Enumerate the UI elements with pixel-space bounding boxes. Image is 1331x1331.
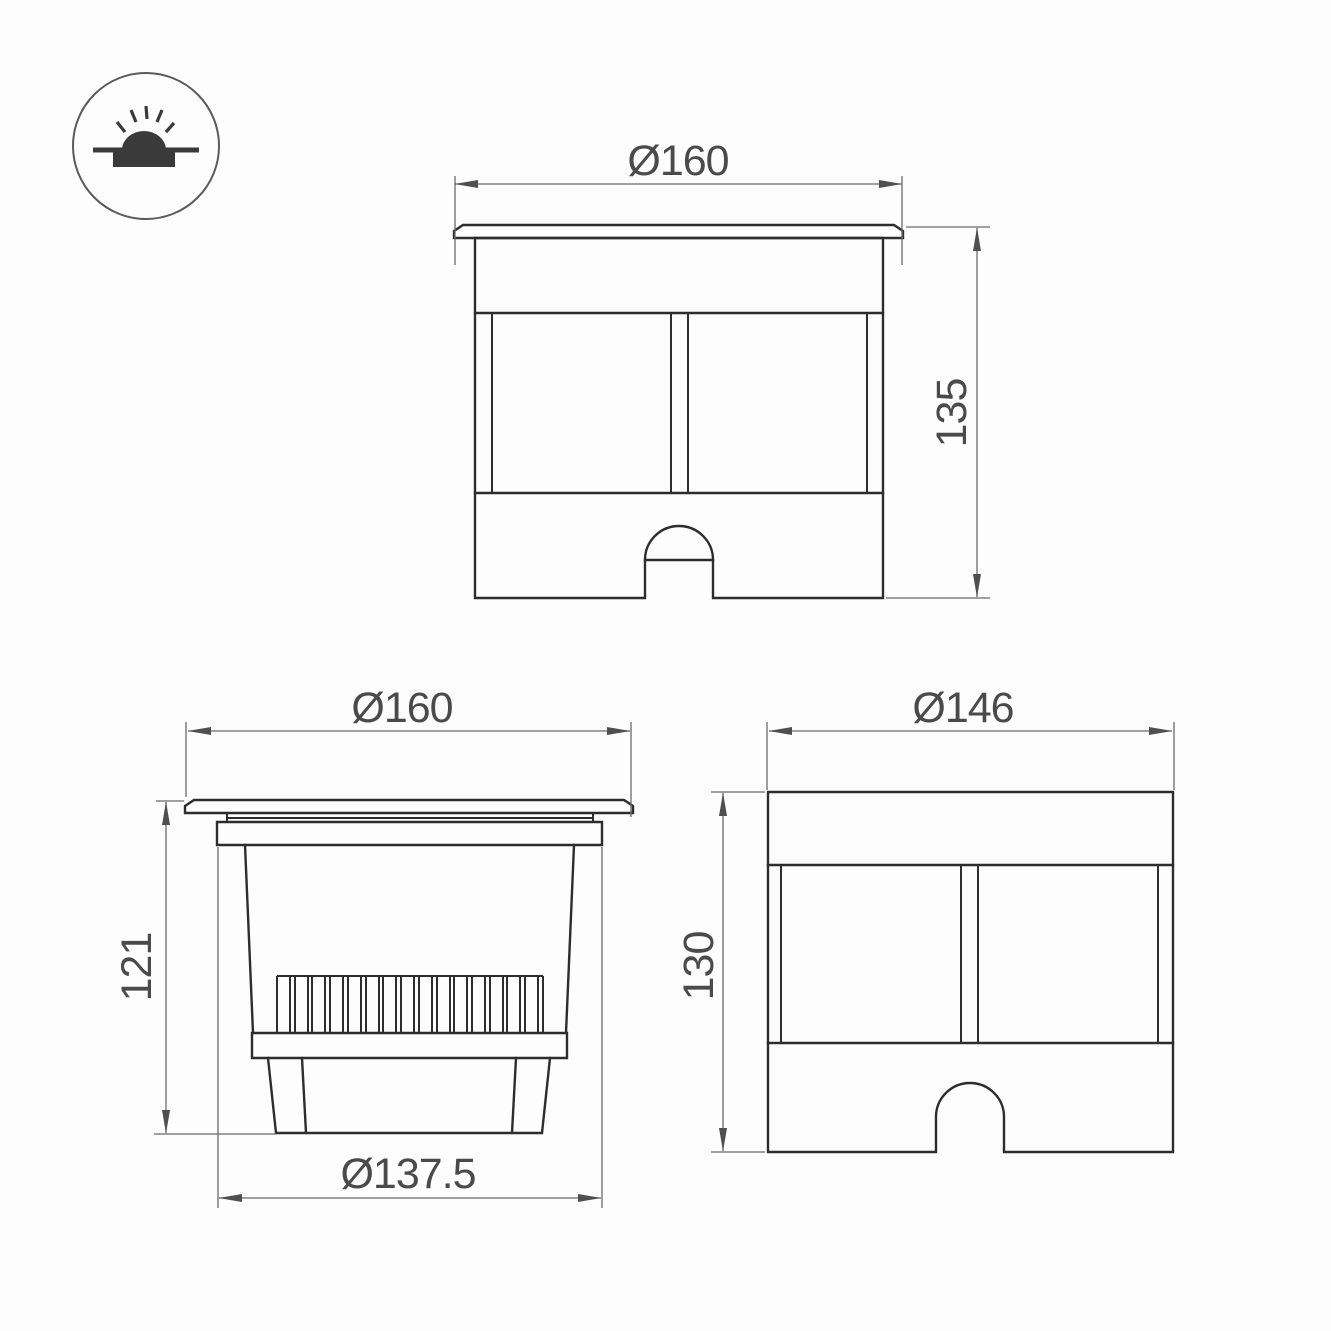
side-heatsink-fins <box>277 976 543 1032</box>
icon-lamp-dome <box>122 131 166 150</box>
dim-rear-height-label: 130 <box>675 932 723 1001</box>
dim-rear-height: 130 <box>675 792 765 1152</box>
front-glass-mullions <box>492 313 867 493</box>
dim-side-height-label: 121 <box>113 933 161 1002</box>
dim-front-width: Ø160 <box>455 137 902 265</box>
rear-body <box>768 792 1173 1152</box>
view-front: Ø160 135 <box>454 137 990 598</box>
install-type-icon <box>73 73 219 219</box>
side-mounting-plate <box>252 1033 567 1058</box>
dim-side-height: 121 <box>113 801 276 1134</box>
front-glass-band-lines <box>475 313 883 493</box>
dim-side-base: Ø137.5 <box>218 847 602 1208</box>
front-cable-arch <box>645 526 713 560</box>
icon-lamp-body <box>113 152 175 167</box>
front-flange <box>454 225 903 238</box>
dim-front-width-extension-lines <box>455 176 902 265</box>
side-collar <box>217 822 602 845</box>
side-flange-lip <box>227 813 593 822</box>
side-base-housing <box>268 1058 550 1133</box>
view-side: Ø160 121 Ø137.5 <box>113 684 633 1208</box>
dim-front-width-label: Ø160 <box>627 137 728 185</box>
front-body <box>475 238 883 598</box>
dim-side-width: Ø160 <box>186 684 631 817</box>
dimensional-drawing: Ø160 135 Ø160 121 Ø137.5 <box>0 0 1331 1331</box>
dim-rear-width-label: Ø146 <box>912 684 1013 732</box>
rear-glass-band-lines <box>768 865 1173 1043</box>
dim-side-width-extension-lines <box>186 722 631 817</box>
side-flange <box>185 800 633 813</box>
technical-drawing-page: Ø160 135 Ø160 121 Ø137.5 <box>0 0 1331 1331</box>
dim-front-height-label: 135 <box>928 379 976 448</box>
dim-front-height: 135 <box>886 227 990 598</box>
rear-glass-mullions <box>781 865 1158 1043</box>
dim-rear-width-extension-lines <box>767 722 1174 790</box>
dim-rear-width: Ø146 <box>767 684 1174 790</box>
dim-side-base-label: Ø137.5 <box>340 1150 475 1198</box>
icon-light-rays <box>117 106 174 132</box>
view-rear: Ø146 130 <box>675 684 1174 1152</box>
dim-side-height-extension-lines <box>154 801 276 1134</box>
dim-side-width-label: Ø160 <box>351 684 452 732</box>
